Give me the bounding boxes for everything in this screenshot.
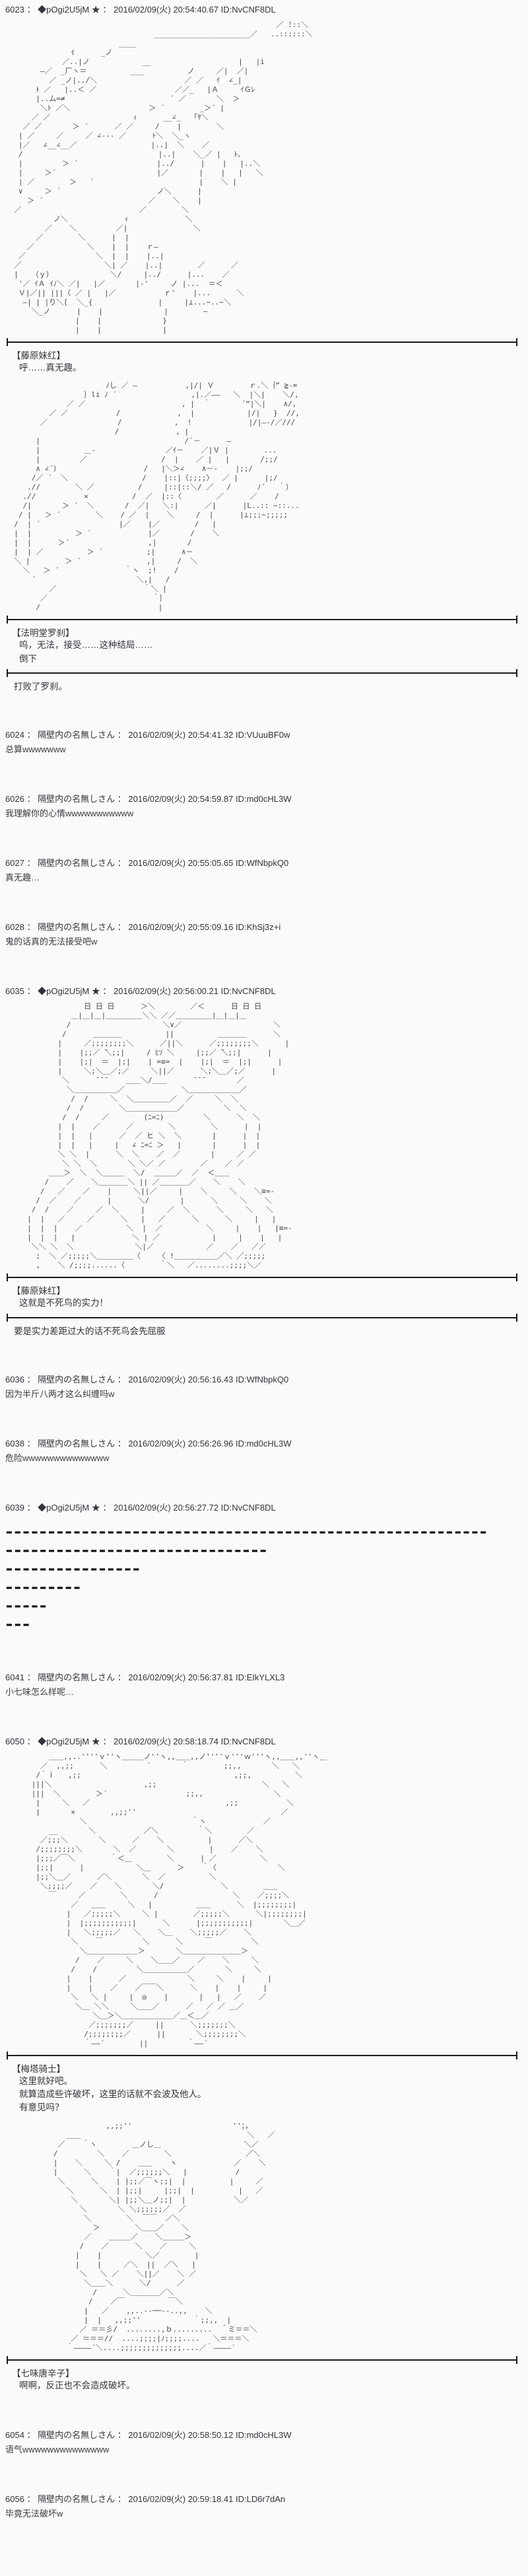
post-header: 6050 ： ◆pOgi2U5jM ★ ： 2016/02/09(火) 20:5… <box>5 1735 525 1747</box>
post-6056: 6056 ： 隔壁内の名無しさん ： 2016/02/09(火) 20:59:1… <box>5 2492 525 2521</box>
speech-text: 这里就好吧。 就算造成些许破坏，这里的话就不会波及他人。 有意见吗？ <box>12 2075 525 2115</box>
dialog-divider <box>7 341 517 343</box>
post-6054: 6054 ： 隔壁内の名無しさん ： 2016/02/09(火) 20:58:5… <box>5 2428 525 2456</box>
post-6039: 6039 ： ◆pOgi2U5jM ★ ： 2016/02/09(火) 20:5… <box>5 1501 525 1635</box>
post-body: 语气wwwwwwwwwwwwww <box>5 2443 525 2456</box>
speaker-name: 【藤原妹红】 <box>12 1283 525 1297</box>
post-header: 6026 ： 隔壁内の名無しさん ： 2016/02/09(火) 20:54:5… <box>5 792 525 805</box>
post-header: 6023 ： ◆pOgi2U5jM ★ ： 2016/02/09(火) 20:5… <box>5 3 525 15</box>
ascii-art-phoenix: 日 日 日 ＞＼ ／＜ 日 日 日 ＿|＿|＿|＿＿＿＿＿＼＼ ／／＿＿＿＿＿|… <box>5 1002 525 1270</box>
speech-text: 呜，无法，接受……这种结局…… 倒下 <box>12 639 525 666</box>
speaker-name: 【法明堂罗刹】 <box>12 626 525 639</box>
post-6036: 6036 ： 隔壁内の名無しさん ： 2016/02/09(火) 20:56:1… <box>5 1373 525 1401</box>
post-header: 6056 ： 隔壁内の名無しさん ： 2016/02/09(火) 20:59:1… <box>5 2492 525 2505</box>
post-body: 我理解你的心情wwwwwwwwwww <box>5 807 525 820</box>
speech-block: 【藤原妹红】 呼……真无趣。 <box>12 348 525 375</box>
thread-page: 6023 ： ◆pOgi2U5jM ★ ： 2016/02/09(火) 20:5… <box>0 0 528 2576</box>
speaker-name: 【七味唐辛子】 <box>12 2366 525 2379</box>
post-header: 6039 ： ◆pOgi2U5jM ★ ： 2016/02/09(火) 20:5… <box>5 1501 525 1513</box>
narration-text: 要是实力差距过大的话不死鸟会先屈服 <box>5 1324 525 1337</box>
post-header: 6054 ： 隔壁内の名無しさん ： 2016/02/09(火) 20:58:5… <box>5 2428 525 2441</box>
post-6028: 6028 ： 隔壁内の名無しさん ： 2016/02/09(火) 20:55:0… <box>5 920 525 948</box>
ascii-art-rakshasa: ﾉし ／ ― ,|/| Ｖ ｒ.＼｛” ≧-= ｝li ﾉ ´ ,|.／―― ＼… <box>5 381 525 612</box>
post-6024: 6024 ： 隔壁内の名無しさん ： 2016/02/09(火) 20:54:4… <box>5 728 525 756</box>
post-6041: 6041 ： 隔壁内の名無しさん ： 2016/02/09(火) 20:56:3… <box>5 1670 525 1699</box>
dialog-divider <box>7 619 517 620</box>
post-body: 鬼的话真的无法接受吧w <box>5 935 525 948</box>
speech-text: 啊啊，反正也不会造成破坏。 <box>12 2379 525 2392</box>
speaker-name: 【梅塔骑士】 <box>12 2061 525 2075</box>
speech-text: 这就是不死鸟的实力！ <box>12 1297 525 1310</box>
post-header: 6036 ： 隔壁内の名無しさん ： 2016/02/09(火) 20:56:1… <box>5 1373 525 1385</box>
ascii-art-meta-knight: ＿＿,,..''''ｖ''ヽ＿＿＿ノ''ヽ,,＿＿,,ノ''''ｖ'''ｗ'''… <box>5 1752 525 2048</box>
scene-divider <box>7 1317 517 1318</box>
post-header: 6035 ： ◆pOgi2U5jM ★ ： 2016/02/09(火) 20:5… <box>5 984 525 997</box>
speaker-name: 【藤原妹红】 <box>12 348 525 361</box>
scene-divider <box>7 672 517 674</box>
dialog-divider <box>7 2055 517 2056</box>
post-header: 6024 ： 隔壁内の名無しさん ： 2016/02/09(火) 20:54:4… <box>5 728 525 740</box>
speech-text: 呼……真无趣。 <box>12 361 525 375</box>
post-6026: 6026 ： 隔壁内の名無しさん ： 2016/02/09(火) 20:54:5… <box>5 792 525 820</box>
post-header: 6041 ： 隔壁内の名無しさん ： 2016/02/09(火) 20:56:3… <box>5 1670 525 1683</box>
dialog-divider <box>7 1277 517 1278</box>
ascii-art-shichimi: ,,;;'' ''；， ＿＿ ＼ ／ ／ ｀ヽ ＿ノし＿ ＼／ / ＼ ／ ＼ <box>5 2122 525 2353</box>
post-header: 6038 ： 隔壁内の名無しさん ： 2016/02/09(火) 20:56:2… <box>5 1437 525 1449</box>
post-header: 6028 ： 隔壁内の名無しさん ： 2016/02/09(火) 20:55:0… <box>5 920 525 933</box>
post-body: 毕竟无法破坏w <box>5 2507 525 2521</box>
post-6050: 6050 ： ◆pOgi2U5jM ★ ： 2016/02/09(火) 20:5… <box>5 1735 525 2392</box>
speech-block: 【藤原妹红】 这就是不死鸟的实力！ <box>12 1283 525 1310</box>
post-body: 真无趣… <box>5 871 525 884</box>
ascii-art-battle-scene: ／ ̄:::＼ ______________________／ ..::::::… <box>5 20 525 335</box>
post-6027: 6027 ： 隔壁内の名無しさん ： 2016/02/09(火) 20:55:0… <box>5 856 525 884</box>
post-6023: 6023 ： ◆pOgi2U5jM ★ ： 2016/02/09(火) 20:5… <box>5 3 525 692</box>
impact-lines-art: ━━━━━━━━━━━━━━━━━━━━━━━━━━━━━━━━━━━━━━━━… <box>7 1524 525 1635</box>
post-body: 因为半斤八两才这么纠缠吗w <box>5 1388 525 1401</box>
post-body: 小七味怎么样呢… <box>5 1686 525 1699</box>
post-header: 6027 ： 隔壁内の名無しさん ： 2016/02/09(火) 20:55:0… <box>5 856 525 869</box>
speech-block: 【七味唐辛子】 啊啊，反正也不会造成破坏。 <box>12 2366 525 2392</box>
post-body: 危险wwwwwwwwwwwwww <box>5 1452 525 1465</box>
narration-text: 打败了罗刹。 <box>5 679 525 692</box>
post-6038: 6038 ： 隔壁内の名無しさん ： 2016/02/09(火) 20:56:2… <box>5 1437 525 1465</box>
speech-block: 【梅塔骑士】 这里就好吧。 就算造成些许破坏，这里的话就不会波及他人。 有意见吗… <box>12 2061 525 2115</box>
speech-block: 【法明堂罗刹】 呜，无法，接受……这种结局…… 倒下 <box>12 626 525 666</box>
post-6035: 6035 ： ◆pOgi2U5jM ★ ： 2016/02/09(火) 20:5… <box>5 984 525 1336</box>
post-body: 总算wwwwwww <box>5 743 525 756</box>
dialog-divider <box>7 2359 517 2361</box>
